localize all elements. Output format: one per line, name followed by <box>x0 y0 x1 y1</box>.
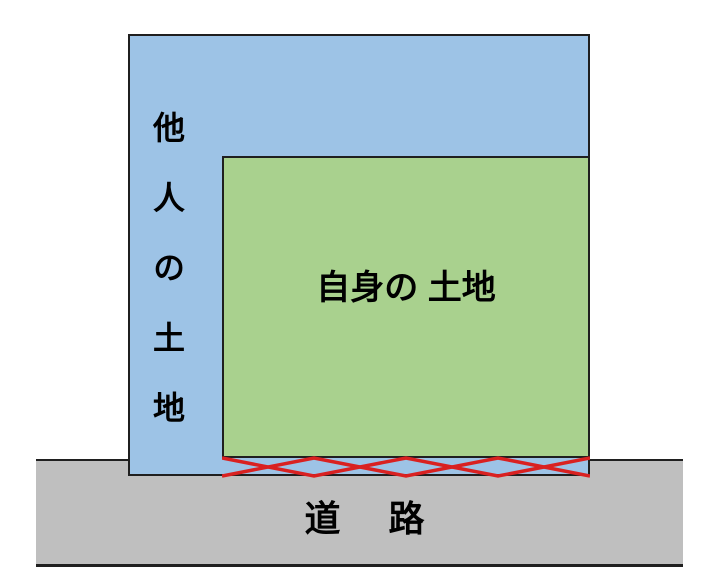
other-land-label: 他人の土地 <box>151 111 183 461</box>
land-diagram: 道 路 自身の 土地 他人の土地 <box>0 0 707 587</box>
hatch-zigzag-line-up <box>222 458 590 476</box>
own-land-region: 自身の 土地 <box>222 156 590 458</box>
hatch-zigzag-line-down <box>222 458 590 476</box>
boundary-hatch <box>222 455 590 479</box>
own-land-label: 自身の 土地 <box>224 260 588 309</box>
road-label: 道 路 <box>304 490 430 542</box>
